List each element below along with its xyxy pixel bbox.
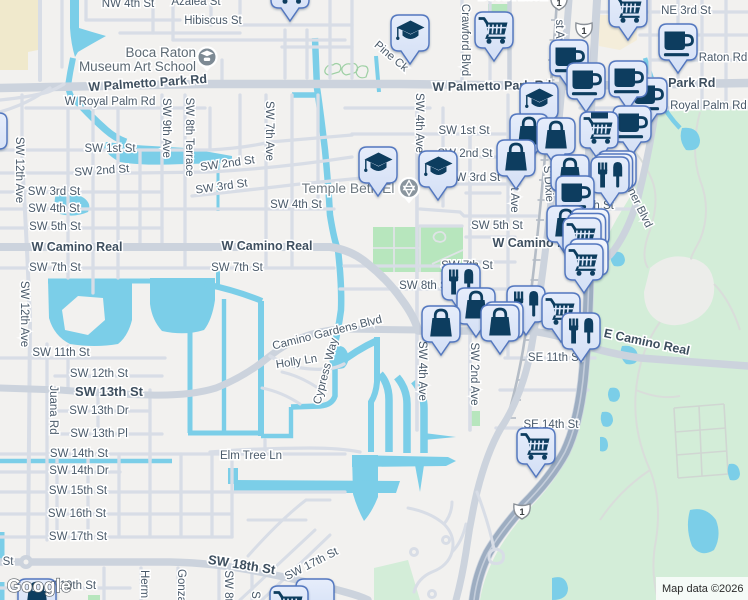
svg-text:W Royal Palm Rd: W Royal Palm Rd xyxy=(65,96,156,108)
svg-text:St: St xyxy=(3,556,15,568)
svg-text:SW 12th Ave: SW 12th Ave xyxy=(18,281,30,347)
svg-text:SW 13th Dr: SW 13th Dr xyxy=(69,405,129,417)
svg-text:SW 11th St: SW 11th St xyxy=(32,347,90,359)
svg-text:S: S xyxy=(249,591,261,599)
svg-text:SW 1st St: SW 1st St xyxy=(84,143,136,155)
svg-text:SW 13th Pl: SW 13th Pl xyxy=(70,428,128,440)
svg-text:SW 4th St: SW 4th St xyxy=(270,199,323,211)
svg-text:t Ave: t Ave xyxy=(508,187,520,212)
svg-text:SW 12th St: SW 12th St xyxy=(70,368,129,380)
svg-text:Elm Tree Ln: Elm Tree Ln xyxy=(220,450,282,462)
svg-text:Azalea St: Azalea St xyxy=(171,0,221,8)
svg-text:SW 7th St: SW 7th St xyxy=(211,262,264,274)
svg-text:SW 16th St: SW 16th St xyxy=(48,508,107,520)
svg-text:Google: Google xyxy=(7,576,71,596)
svg-text:SW 12th Ave: SW 12th Ave xyxy=(13,137,25,203)
svg-text:Boca Raton: Boca Raton xyxy=(478,0,547,3)
svg-text:SW 5th St: SW 5th St xyxy=(471,220,524,232)
svg-text:NE 3rd St: NE 3rd St xyxy=(661,5,712,17)
svg-text:SW 4th Ave: SW 4th Ave xyxy=(413,93,425,153)
svg-text:1: 1 xyxy=(556,0,562,9)
svg-text:SW 3rd St: SW 3rd St xyxy=(28,186,81,198)
svg-text:Museum Art School: Museum Art School xyxy=(79,59,196,74)
svg-text:SW 8th Terrace: SW 8th Terrace xyxy=(183,97,195,176)
svg-text:Herm: Herm xyxy=(138,570,150,598)
svg-text:SW 14th St: SW 14th St xyxy=(50,448,109,460)
svg-text:SW 4th St: SW 4th St xyxy=(28,203,81,215)
svg-text:SW 7th St: SW 7th St xyxy=(29,262,82,274)
svg-text:NW 4th St: NW 4th St xyxy=(102,0,155,10)
svg-text:SW 13th St: SW 13th St xyxy=(75,384,144,399)
svg-text:SW 2nd Ave: SW 2nd Ave xyxy=(468,342,480,405)
svg-text:Map data ©2026: Map data ©2026 xyxy=(662,583,744,595)
svg-text:SW 7th Ave: SW 7th Ave xyxy=(263,101,275,161)
svg-text:SW 5th St: SW 5th St xyxy=(29,221,82,233)
svg-text:SW 15th St: SW 15th St xyxy=(49,485,108,497)
svg-text:SW 17th St: SW 17th St xyxy=(49,531,108,543)
svg-text:SW 9th Ave: SW 9th Ave xyxy=(160,98,172,158)
svg-text:SW 1st St: SW 1st St xyxy=(438,125,490,137)
svg-text:Gonza: Gonza xyxy=(175,569,187,600)
svg-text:W Camino Real: W Camino Real xyxy=(222,239,313,253)
svg-text:1: 1 xyxy=(581,26,587,37)
svg-text:SW 8t: SW 8t xyxy=(222,570,234,600)
svg-text:E Royal Palm Rd: E Royal Palm Rd xyxy=(659,100,747,112)
svg-text:Hibiscus St: Hibiscus St xyxy=(184,15,242,27)
svg-text:W Camino Real: W Camino Real xyxy=(32,240,123,254)
svg-text:SW 4th Ave: SW 4th Ave xyxy=(416,341,428,401)
svg-text:1: 1 xyxy=(519,507,525,518)
svg-text:SW 14th Dr: SW 14th Dr xyxy=(49,465,109,477)
svg-text:Juana Rd: Juana Rd xyxy=(47,385,59,434)
svg-text:Raton Rd: Raton Rd xyxy=(699,52,748,64)
svg-text:Boca Raton: Boca Raton xyxy=(125,45,196,60)
svg-text:Crawford Blvd: Crawford Blvd xyxy=(459,4,471,76)
